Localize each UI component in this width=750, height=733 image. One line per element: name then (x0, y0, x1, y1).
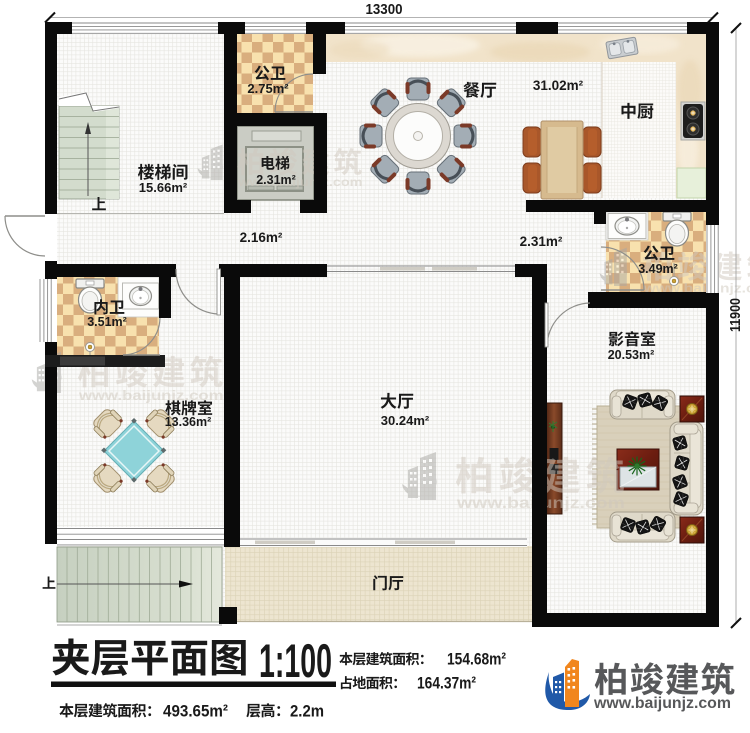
svg-text:164.37m²: 164.37m² (417, 675, 476, 693)
svg-text:3.51m²: 3.51m² (87, 315, 127, 329)
svg-text:11900: 11900 (727, 298, 744, 332)
svg-text:2.31m²: 2.31m² (256, 173, 296, 187)
svg-text:www.baijunjz.com: www.baijunjz.com (593, 695, 731, 712)
svg-text:15.66m²: 15.66m² (139, 180, 188, 195)
svg-text:154.68m²: 154.68m² (447, 651, 506, 669)
svg-text:493.65m²: 493.65m² (163, 703, 228, 721)
svg-text:20.53m²: 20.53m² (608, 348, 655, 362)
svg-text:www.baijunjz.com: www.baijunjz.com (78, 388, 224, 403)
svg-text:13300: 13300 (366, 1, 403, 18)
svg-text:2.31m²: 2.31m² (520, 234, 563, 249)
svg-text:3.49m²: 3.49m² (638, 262, 678, 276)
svg-text:1:100: 1:100 (259, 634, 332, 687)
svg-text:2.16m²: 2.16m² (240, 230, 283, 245)
svg-text:2.75m²: 2.75m² (247, 81, 289, 96)
svg-text:2.2m: 2.2m (290, 703, 324, 721)
svg-text:31.02m²: 31.02m² (533, 78, 584, 93)
svg-text:30.24m²: 30.24m² (381, 413, 430, 428)
svg-text:13.36m²: 13.36m² (165, 415, 212, 429)
